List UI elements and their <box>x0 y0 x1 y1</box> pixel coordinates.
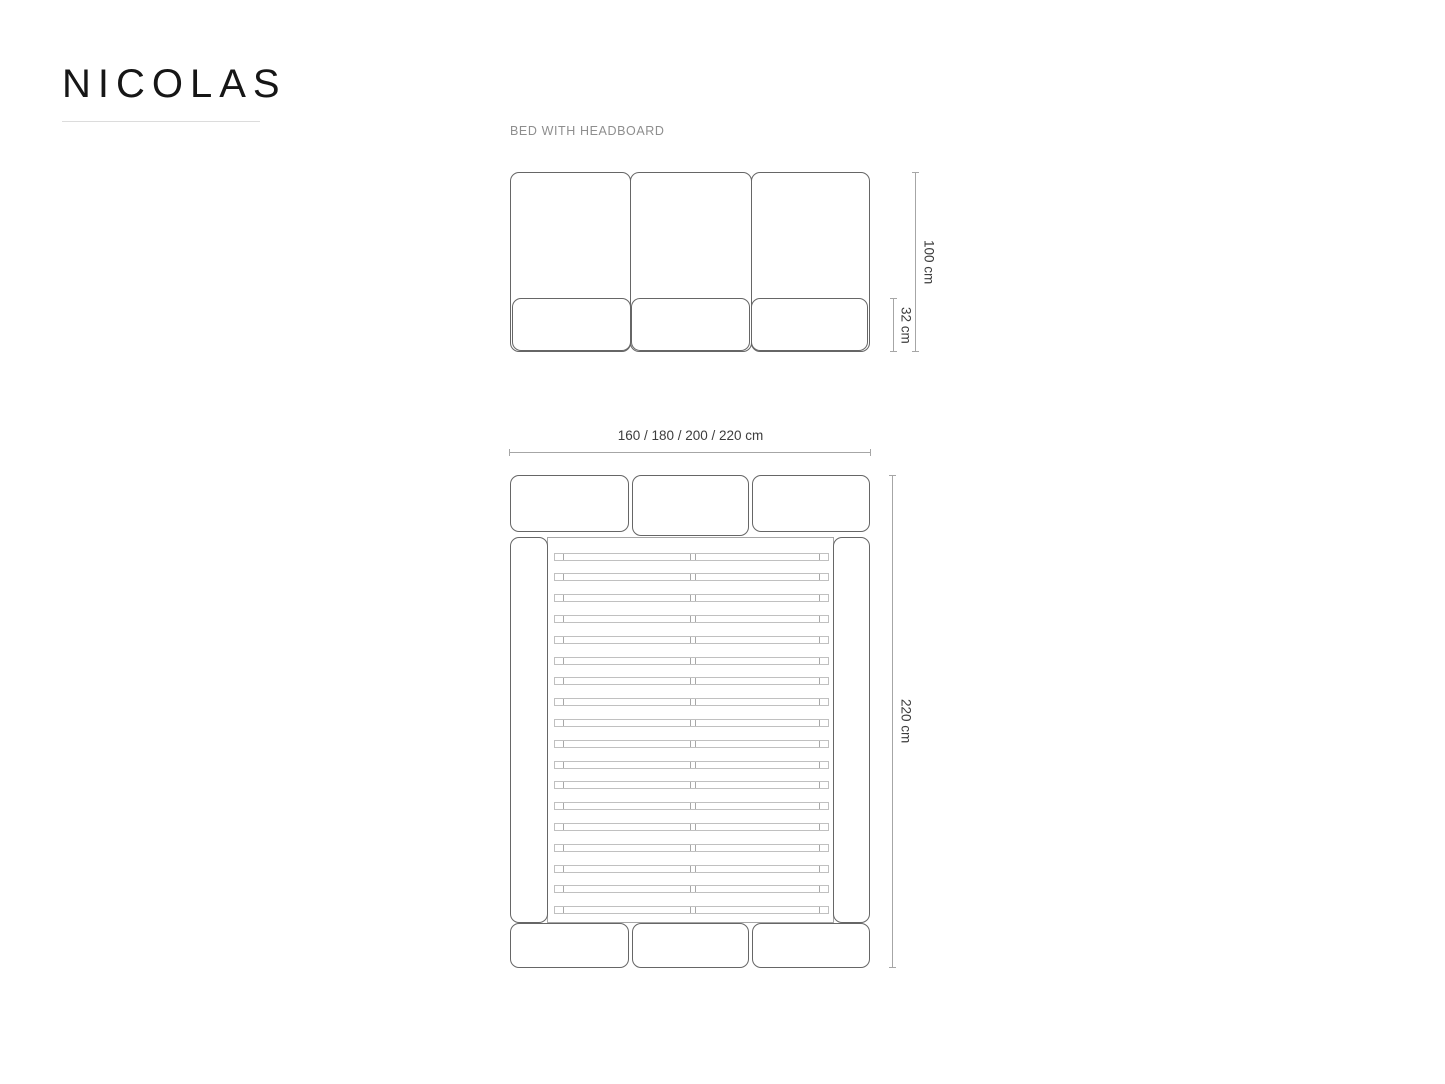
base-panel-right <box>751 298 868 351</box>
page: NICOLAS BED WITH HEADBOARD 100 cm 32 cm … <box>0 0 1445 1084</box>
side-rail-right <box>833 537 870 923</box>
slat-center-joint <box>690 782 696 788</box>
slat-end-cap-right <box>819 595 828 601</box>
slat-center-joint <box>690 907 696 913</box>
slat-end-cap-left <box>555 866 564 872</box>
slat <box>554 823 829 831</box>
slat-end-cap-right <box>819 720 828 726</box>
slat-center-joint <box>690 637 696 643</box>
slat <box>554 906 829 914</box>
slat-end-cap-right <box>819 554 828 560</box>
product-label: BED WITH HEADBOARD <box>510 124 665 138</box>
slat-end-cap-right <box>819 762 828 768</box>
slat-end-cap-left <box>555 741 564 747</box>
slat-end-cap-left <box>555 762 564 768</box>
slat-end-cap-left <box>555 574 564 580</box>
brand-logo: NICOLAS <box>62 62 287 106</box>
brand-underline <box>62 121 260 122</box>
slat-center-joint <box>690 741 696 747</box>
slat-center-joint <box>690 762 696 768</box>
slat <box>554 657 829 665</box>
slat <box>554 781 829 789</box>
slat-end-cap-right <box>819 782 828 788</box>
dimension-label-total-height: 100 cm <box>918 172 940 352</box>
slat-center-joint <box>690 886 696 892</box>
dimension-line-length <box>892 475 893 968</box>
slat-end-cap-left <box>555 907 564 913</box>
slat-end-cap-left <box>555 824 564 830</box>
slat <box>554 615 829 623</box>
slat-end-cap-right <box>819 741 828 747</box>
slat <box>554 719 829 727</box>
slat-end-cap-left <box>555 658 564 664</box>
slat-end-cap-left <box>555 595 564 601</box>
slat-center-joint <box>690 824 696 830</box>
slat <box>554 865 829 873</box>
slat-end-cap-right <box>819 907 828 913</box>
slat-center-joint <box>690 845 696 851</box>
headboard-top-left <box>510 475 629 532</box>
dimension-label-base-height: 32 cm <box>895 298 917 352</box>
slat-end-cap-left <box>555 699 564 705</box>
slat-center-joint <box>690 616 696 622</box>
slat <box>554 844 829 852</box>
slat <box>554 677 829 685</box>
slat-end-cap-right <box>819 845 828 851</box>
slat-center-joint <box>690 678 696 684</box>
footboard-panel-middle <box>632 923 749 968</box>
slat-end-cap-left <box>555 803 564 809</box>
slat-center-joint <box>690 554 696 560</box>
side-rail-left <box>510 537 548 923</box>
slat-end-cap-right <box>819 866 828 872</box>
slat-end-cap-right <box>819 886 828 892</box>
slat-center-joint <box>690 658 696 664</box>
slat-end-cap-right <box>819 803 828 809</box>
slat-area <box>547 537 834 923</box>
slat-end-cap-right <box>819 574 828 580</box>
dimension-line-base-height <box>893 298 894 352</box>
slat-end-cap-left <box>555 637 564 643</box>
slat-end-cap-left <box>555 678 564 684</box>
slat-end-cap-left <box>555 720 564 726</box>
dimension-label-length: 220 cm <box>895 475 917 968</box>
slat-center-joint <box>690 699 696 705</box>
slat-center-joint <box>690 574 696 580</box>
slat <box>554 885 829 893</box>
slat <box>554 553 829 561</box>
slat-center-joint <box>690 803 696 809</box>
slat <box>554 802 829 810</box>
base-panel-middle <box>631 298 750 351</box>
slat-end-cap-left <box>555 782 564 788</box>
base-panel-left <box>512 298 631 351</box>
slat <box>554 761 829 769</box>
slat-end-cap-left <box>555 554 564 560</box>
slat-end-cap-left <box>555 616 564 622</box>
headboard-top-middle <box>632 475 749 536</box>
slat <box>554 636 829 644</box>
slat-end-cap-right <box>819 678 828 684</box>
footboard-panel-right <box>752 923 870 968</box>
dimension-label-width-options: 160 / 180 / 200 / 220 cm <box>510 428 871 443</box>
slat <box>554 740 829 748</box>
slat <box>554 594 829 602</box>
headboard-top-right <box>752 475 870 532</box>
slat-center-joint <box>690 595 696 601</box>
footboard-panel-left <box>510 923 629 968</box>
slat-center-joint <box>690 866 696 872</box>
slat-center-joint <box>690 720 696 726</box>
slat <box>554 698 829 706</box>
slat-end-cap-left <box>555 845 564 851</box>
slat-end-cap-right <box>819 637 828 643</box>
dimension-line-width <box>509 452 871 453</box>
slat-end-cap-right <box>819 699 828 705</box>
slat-end-cap-right <box>819 616 828 622</box>
slat-end-cap-left <box>555 886 564 892</box>
slat-end-cap-right <box>819 658 828 664</box>
slat-end-cap-right <box>819 824 828 830</box>
slat <box>554 573 829 581</box>
